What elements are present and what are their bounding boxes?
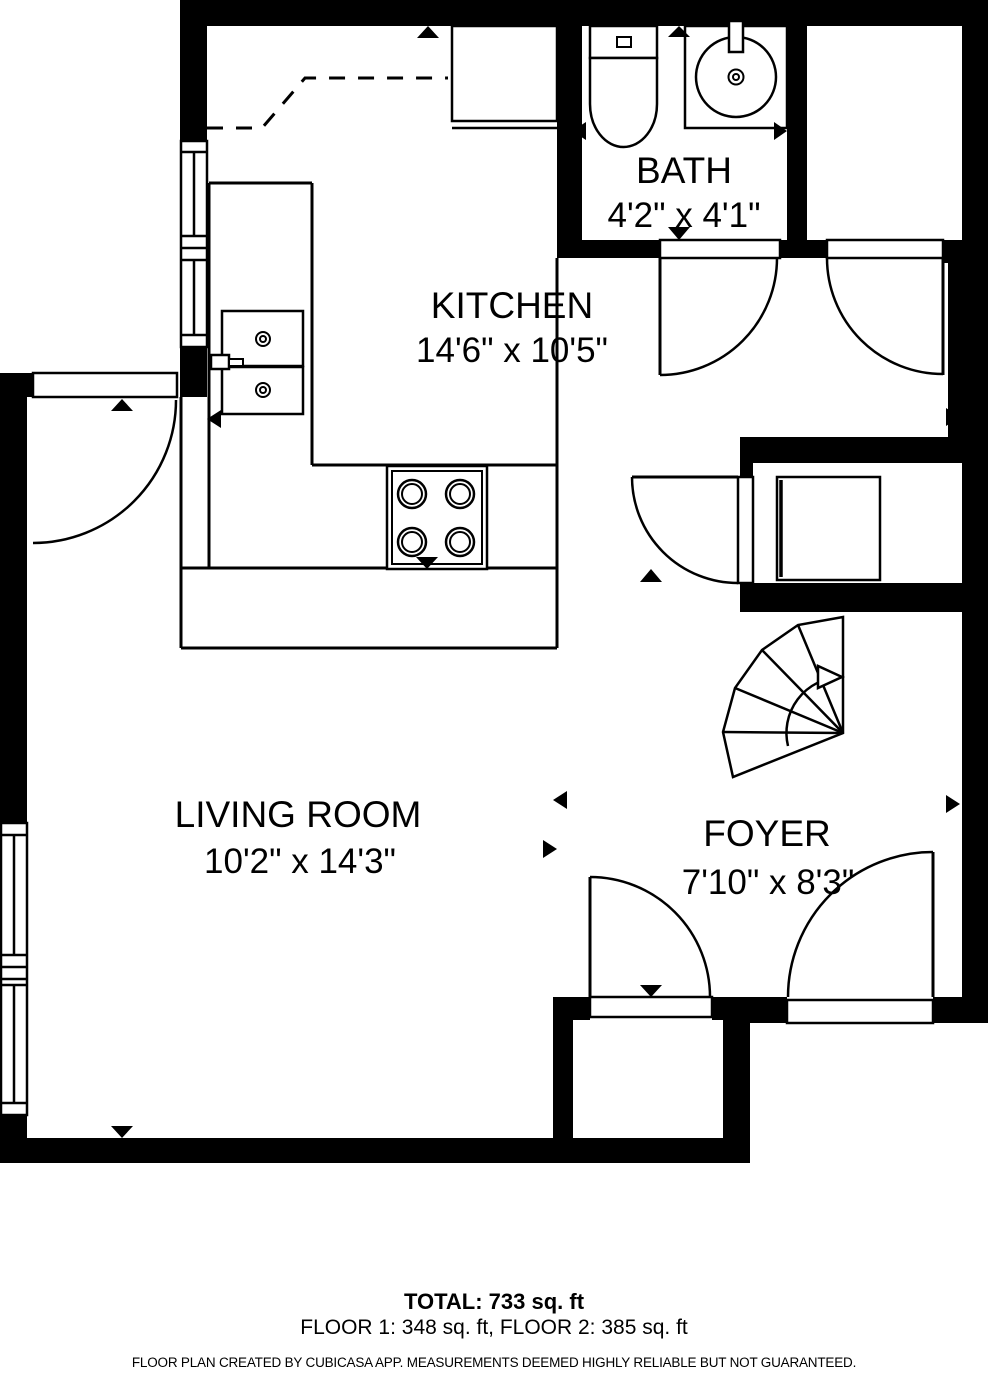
arrow-up-icon	[111, 399, 133, 411]
windows	[1, 141, 207, 1115]
door-living-room	[33, 400, 176, 543]
arrow-right-icon	[946, 795, 960, 813]
door-closet	[827, 258, 943, 375]
wall-kitchen-left-lower	[180, 347, 207, 397]
label-living-room-dims: 10'2" x 14'3"	[204, 842, 396, 881]
label-kitchen: KITCHEN	[431, 285, 593, 326]
wall-vestibule-top-b	[712, 997, 750, 1020]
utility-appliance	[777, 477, 880, 580]
door-opening-front	[787, 1000, 933, 1023]
door-opening-bath	[660, 240, 780, 258]
toilet	[590, 26, 657, 147]
door-opening-vestibule	[590, 997, 712, 1017]
toilet-flush-button	[617, 37, 631, 47]
wall-bath-bottom-a	[582, 240, 660, 258]
wall-kitchen-left-upper	[180, 26, 207, 141]
door-opening-living	[33, 373, 177, 397]
walls	[0, 0, 988, 1163]
stairs-direction-arrow-icon	[818, 666, 842, 688]
wall-foyer-bottom-b	[933, 997, 988, 1023]
wall-right-mid	[948, 240, 988, 463]
arrow-up-icon	[640, 569, 662, 582]
kitchen-faucet	[211, 355, 229, 369]
label-bath: BATH	[636, 150, 732, 191]
label-bath-dims: 4'2" x 4'1"	[607, 196, 760, 235]
label-foyer-dims: 7'10" x 8'3"	[682, 863, 855, 902]
disclaimer-text: FLOOR PLAN CREATED BY CUBICASA APP. MEAS…	[0, 1355, 988, 1371]
arrow-down-icon	[111, 1126, 133, 1138]
flow-arrows	[111, 26, 960, 1138]
wall-bath-closet-divider	[787, 26, 807, 258]
wall-left-lower	[0, 1115, 27, 1138]
label-foyer: FOYER	[703, 813, 830, 854]
floor-areas-text: FLOOR 1: 348 sq. ft, FLOOR 2: 385 sq. ft	[0, 1315, 988, 1341]
stove	[387, 466, 487, 569]
total-area-text: TOTAL: 733 sq. ft	[0, 1288, 988, 1315]
arrow-right-icon	[543, 840, 557, 858]
wall-bath-bottom-b	[780, 240, 827, 258]
wall-right-top	[962, 0, 988, 245]
wall-bottom	[0, 1138, 750, 1163]
door-opening-utility	[738, 477, 753, 583]
bathroom-sink	[685, 21, 787, 128]
spiral-staircase	[723, 617, 843, 777]
bathroom-faucet	[729, 21, 743, 52]
footer: TOTAL: 733 sq. ft FLOOR 1: 348 sq. ft, F…	[0, 1288, 988, 1371]
kitchen-sink	[211, 311, 303, 414]
stairs-outline	[723, 617, 843, 777]
arrow-left-icon	[553, 791, 567, 809]
arrow-up-icon	[417, 26, 439, 38]
door-bath	[660, 258, 777, 375]
wall-bath-left	[557, 26, 582, 258]
arrow-down-icon	[640, 985, 662, 997]
label-living-room: LIVING ROOM	[175, 794, 422, 835]
door-opening-closet	[827, 240, 943, 258]
wall-top	[180, 0, 988, 26]
wall-left-upper	[0, 373, 27, 823]
wall-left-door-stub	[0, 373, 33, 397]
window-kitchen-left	[181, 141, 207, 347]
wall-right-lower	[962, 455, 988, 1023]
refrigerator	[452, 26, 557, 128]
wall-utility-top	[740, 437, 988, 463]
wall-utility-bottom	[740, 583, 988, 612]
wall-vestibule-top-a	[573, 997, 590, 1020]
floor-plan-canvas: KITCHEN 14'6" x 10'5" BATH 4'2" x 4'1" L…	[0, 0, 988, 1373]
wall-foyer-bottom-a	[750, 997, 787, 1023]
label-kitchen-dims: 14'6" x 10'5"	[416, 331, 608, 370]
upper-cabinets-dashed	[207, 78, 448, 128]
window-living-left	[1, 823, 27, 1115]
door-utility	[632, 477, 738, 583]
